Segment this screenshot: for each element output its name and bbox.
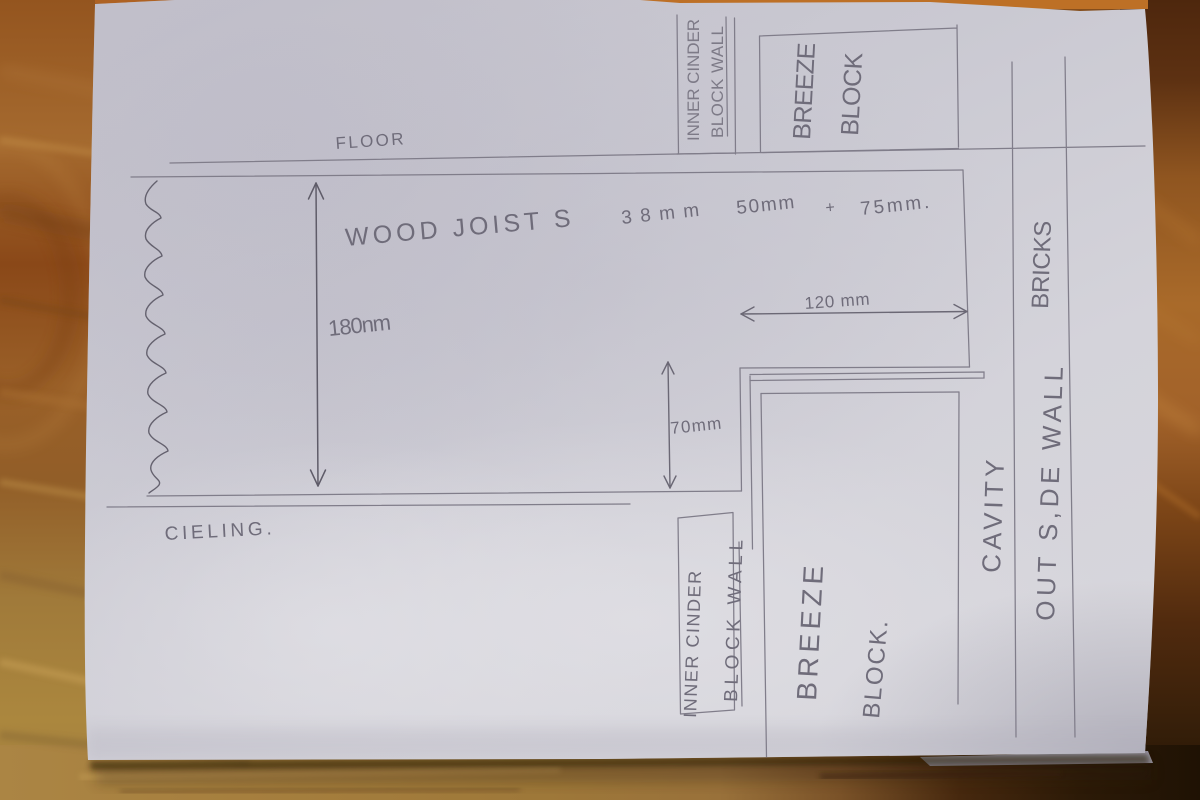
svg-text:INNER CINDER: INNER CINDER xyxy=(684,19,703,141)
svg-text:CAVITY: CAVITY xyxy=(976,459,1010,573)
svg-text:BLOCK WALL: BLOCK WALL xyxy=(708,26,727,138)
svg-text:BRICKS: BRICKS xyxy=(1027,220,1057,309)
svg-text:BREEZE: BREEZE xyxy=(788,42,821,140)
svg-text:+: + xyxy=(825,199,836,217)
svg-text:BLOCK: BLOCK xyxy=(836,52,868,137)
